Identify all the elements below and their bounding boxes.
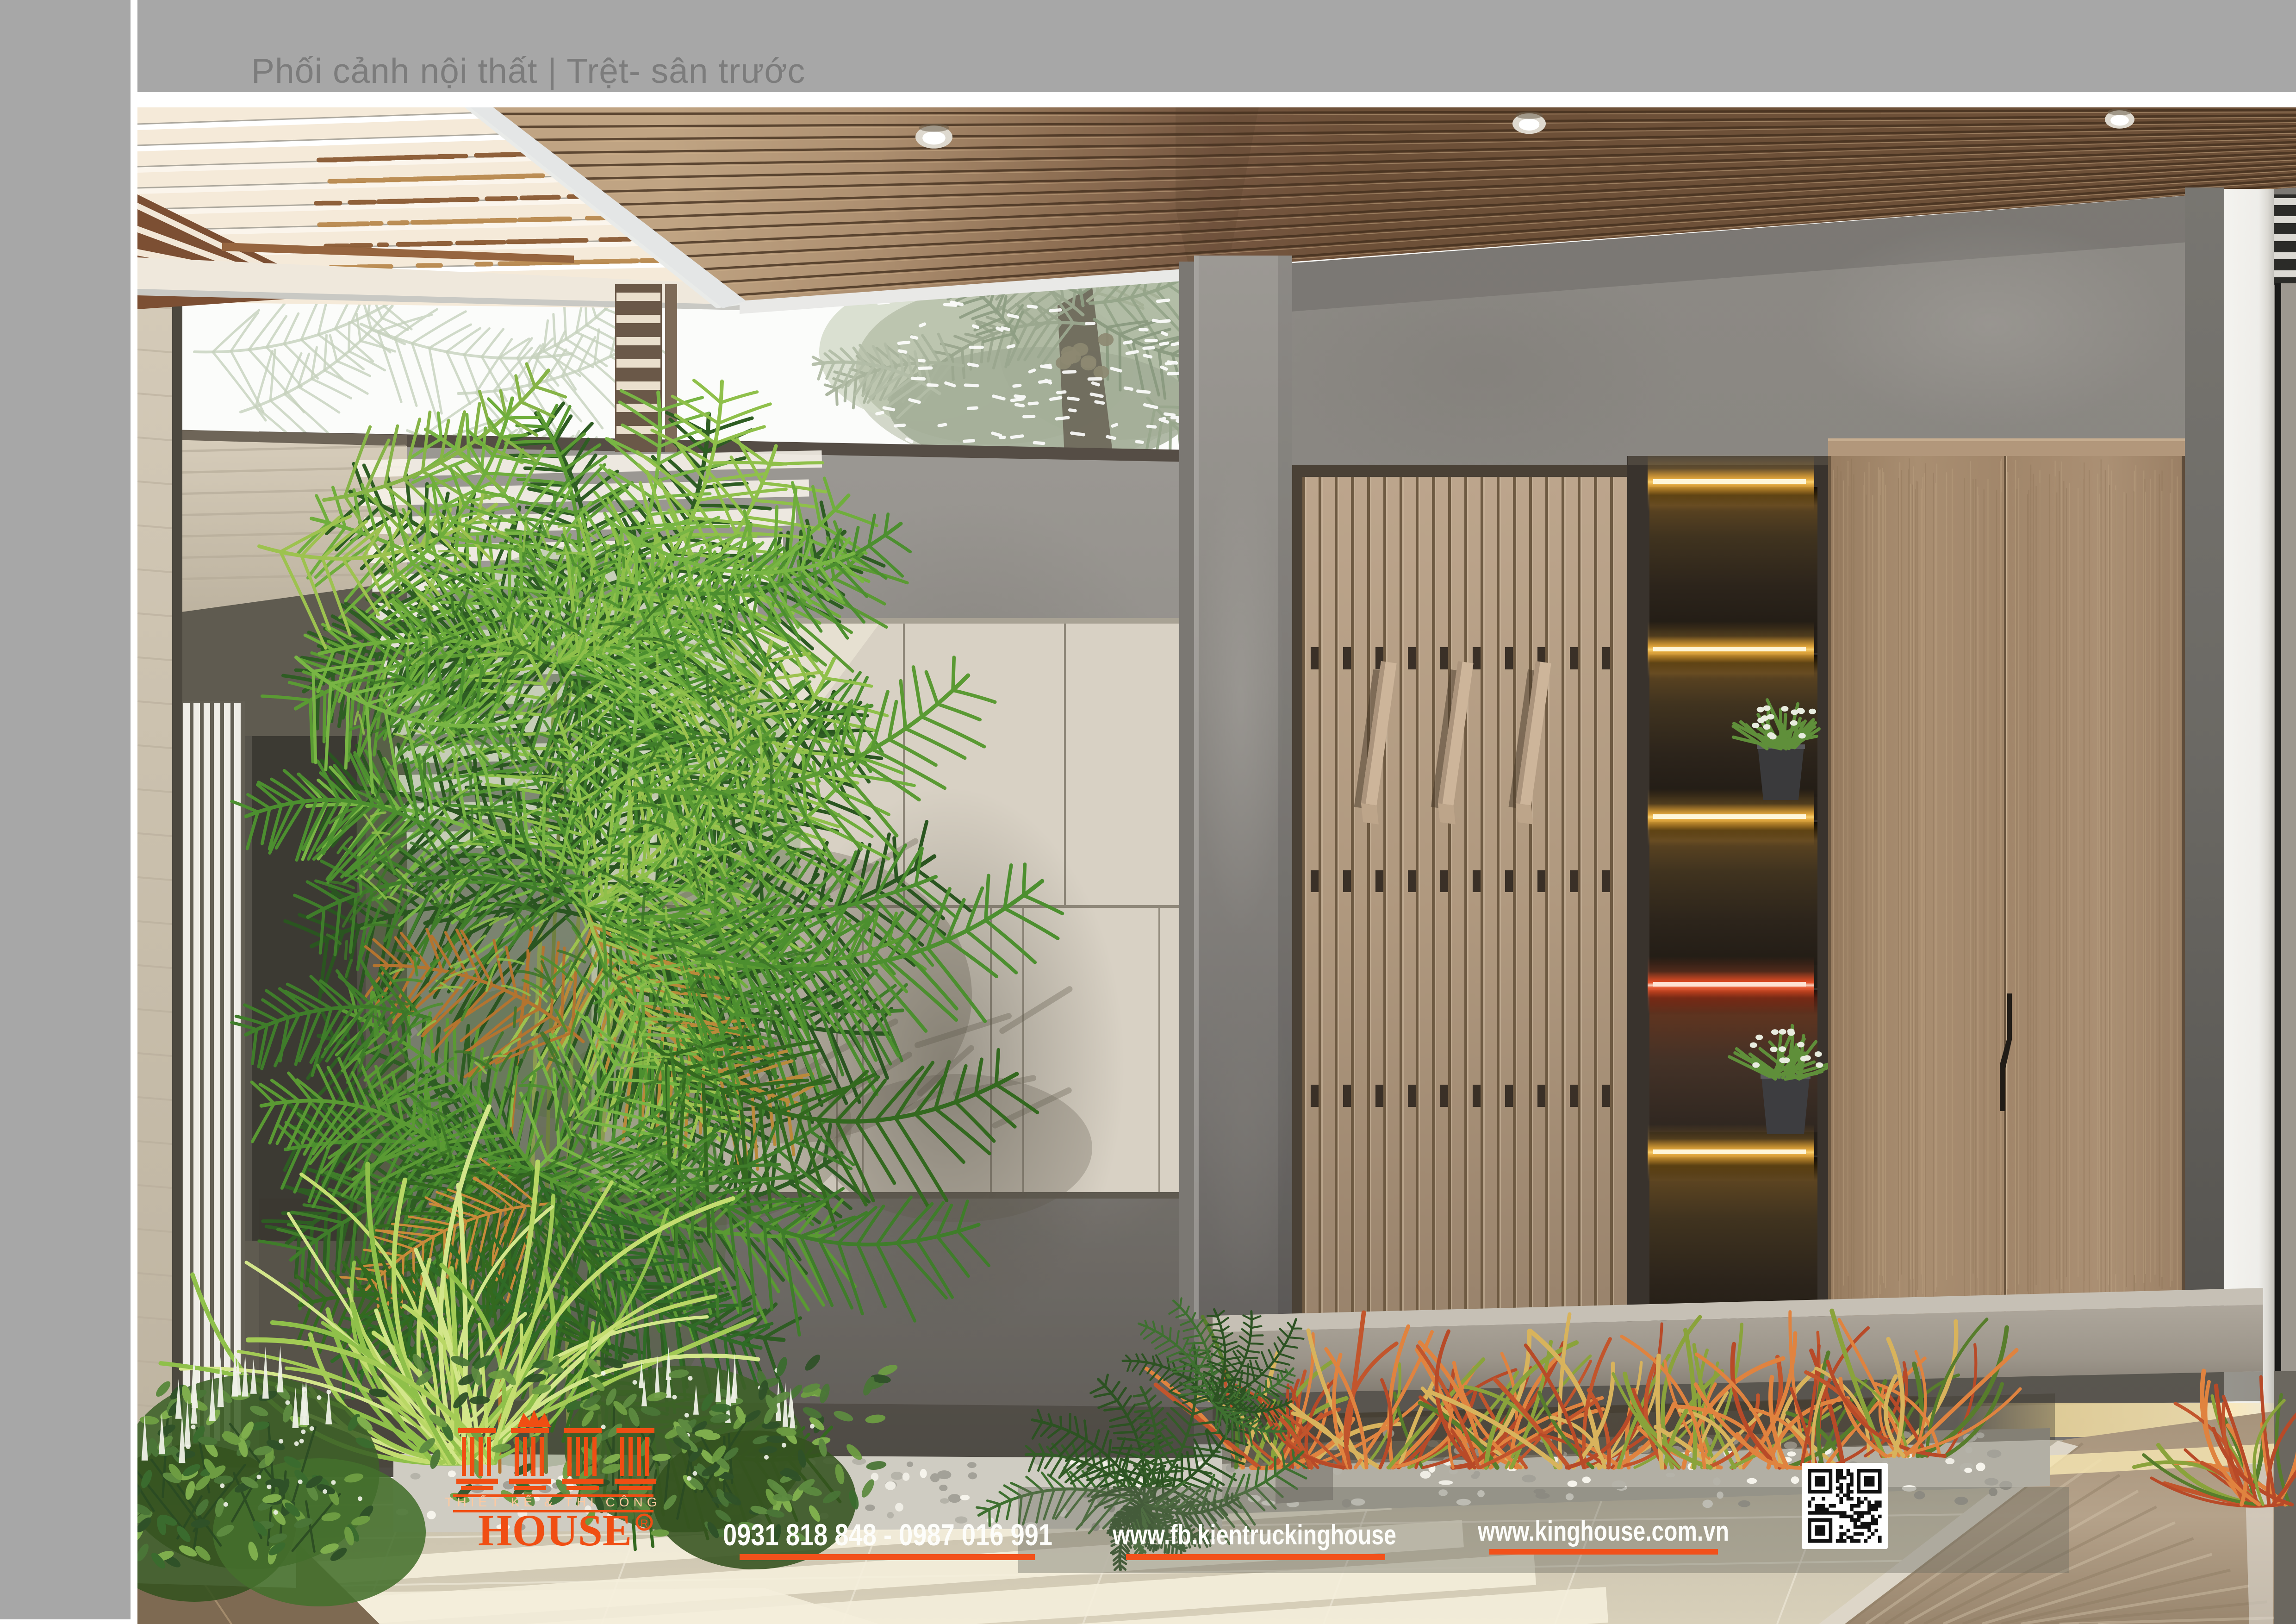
svg-text:R: R xyxy=(640,1518,648,1530)
svg-text:0931 818 848 - 0987 016 991: 0931 818 848 - 0987 016 991 xyxy=(723,1518,1052,1552)
svg-text:HOUSE: HOUSE xyxy=(478,1505,632,1555)
svg-text:www.fb.kientruckinghouse: www.fb.kientruckinghouse xyxy=(1112,1519,1396,1550)
svg-text:www.kinghouse.com.vn: www.kinghouse.com.vn xyxy=(1477,1516,1729,1547)
